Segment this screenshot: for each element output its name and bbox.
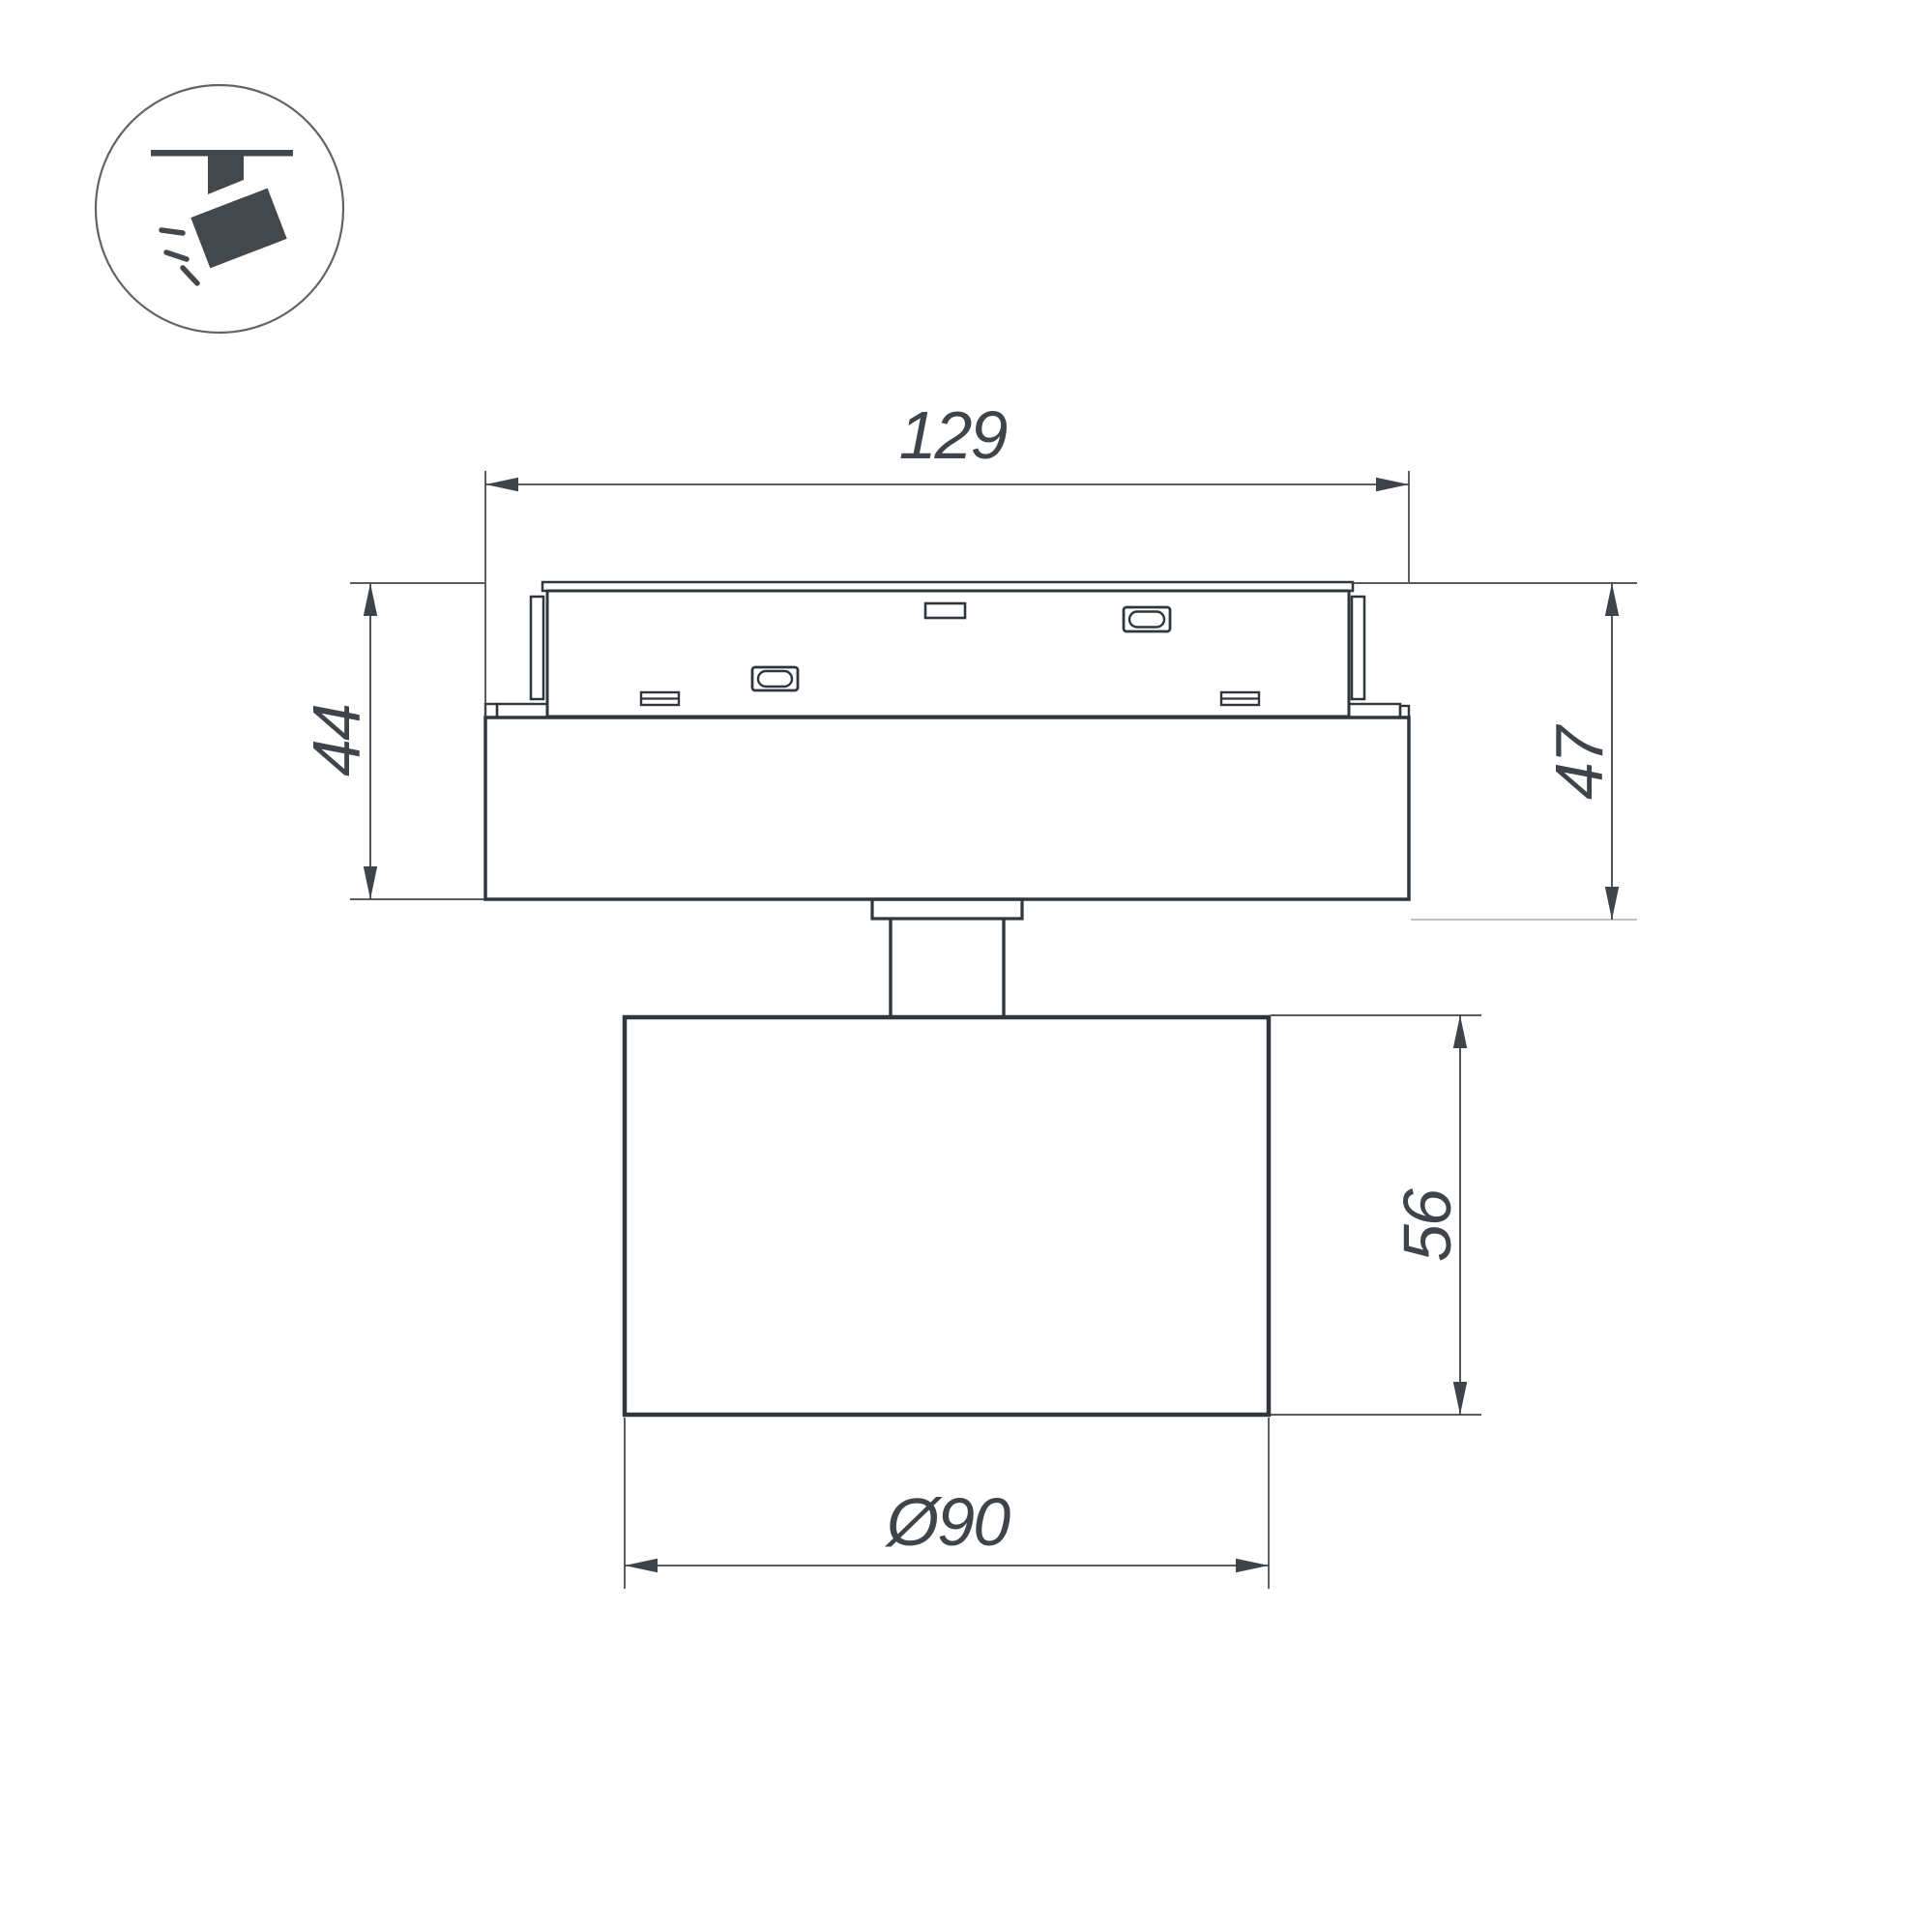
dimension-label: 47 <box>1541 723 1617 800</box>
driver-housing <box>485 717 1409 899</box>
dimensions: 129 44 47 56 <box>299 397 1637 1589</box>
base-right-notch <box>1400 706 1409 717</box>
contact-button-pill <box>1129 612 1164 628</box>
contact-window <box>925 603 965 618</box>
base-right-lip <box>1349 704 1400 717</box>
fixture-drawing <box>485 582 1409 1415</box>
dimension-drawing-canvas: 129 44 47 56 <box>0 0 1932 1932</box>
left-spring-clip <box>531 597 543 699</box>
dim-head-diameter: Ø90 <box>625 1418 1269 1589</box>
adapter-details <box>641 603 1259 705</box>
right-spring-clip <box>1352 597 1364 699</box>
dim-height-left: 44 <box>299 583 484 899</box>
light-ray <box>161 230 183 233</box>
dim-head-height: 56 <box>1271 1015 1481 1415</box>
dimension-label: 56 <box>1390 1188 1465 1262</box>
base-left-notch <box>485 704 497 717</box>
dimension-label: 44 <box>299 705 374 776</box>
dimension-label: Ø90 <box>885 1484 1010 1560</box>
base-left-lip <box>497 704 547 717</box>
lamp-head-cylinder <box>625 1017 1269 1415</box>
contact-button-pill <box>758 671 792 687</box>
dim-width: 129 <box>485 397 1409 717</box>
screenshot-root: 129 44 47 56 <box>0 0 1932 1932</box>
dim-height-right: 47 <box>1353 583 1637 920</box>
mounting-type-badge <box>96 85 343 333</box>
swivel-flange <box>872 899 1022 919</box>
dimension-label: 129 <box>899 397 1008 473</box>
